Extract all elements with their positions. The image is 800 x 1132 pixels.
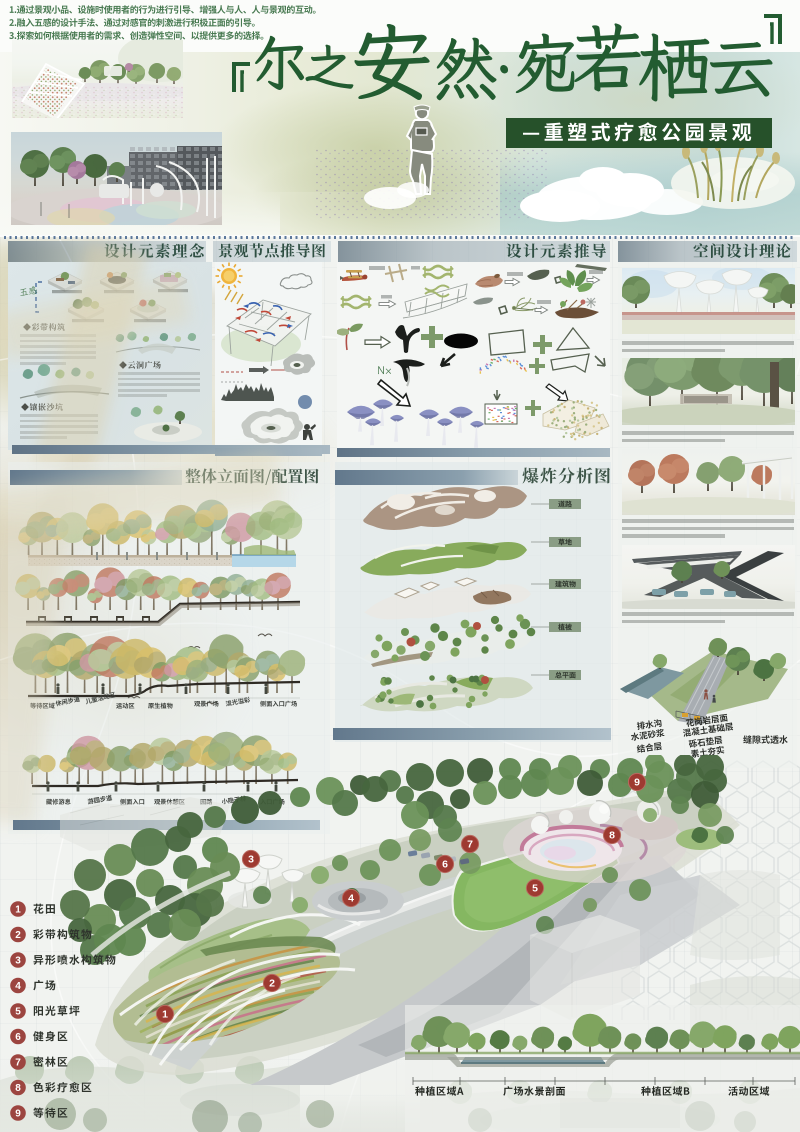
svg-text:5: 5	[532, 883, 538, 895]
svg-text:3: 3	[15, 955, 21, 966]
svg-text:2: 2	[269, 978, 275, 990]
svg-text:9: 9	[634, 777, 640, 789]
svg-text:6: 6	[442, 859, 448, 871]
svg-text:4: 4	[15, 981, 21, 992]
svg-text:1: 1	[15, 904, 21, 915]
svg-text:8: 8	[15, 1083, 21, 1094]
svg-text:3: 3	[248, 854, 254, 866]
svg-text:8: 8	[609, 830, 615, 842]
svg-text:9: 9	[15, 1108, 21, 1119]
svg-text:7: 7	[467, 839, 473, 851]
svg-text:7: 7	[15, 1057, 21, 1068]
svg-text:4: 4	[348, 893, 354, 905]
svg-text:2: 2	[15, 930, 21, 941]
svg-text:1: 1	[162, 1009, 168, 1021]
svg-text:6: 6	[15, 1032, 21, 1043]
svg-text:5: 5	[15, 1006, 21, 1017]
